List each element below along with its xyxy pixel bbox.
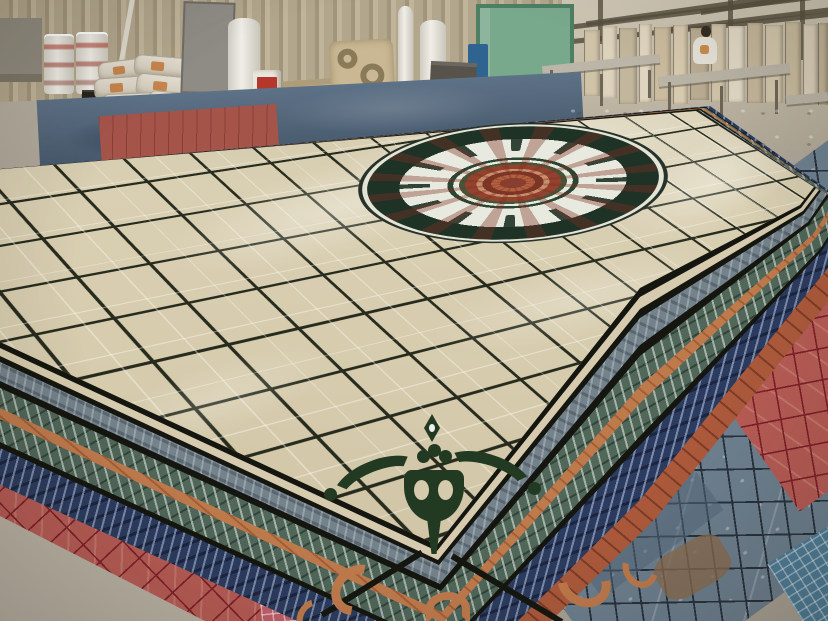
table-leg (648, 70, 651, 98)
leaning-slab (728, 26, 745, 102)
crown-dot (439, 450, 452, 463)
worker-head (701, 26, 711, 37)
leaning-slab (747, 23, 763, 103)
horn-tip (528, 482, 541, 495)
factory-floor-photo (0, 0, 828, 621)
leaning-slab (673, 25, 688, 104)
volute-center-knot (426, 592, 470, 621)
shield-cutout (414, 480, 429, 500)
tassel-dot (429, 424, 435, 432)
worker (693, 37, 717, 64)
leaning-slab (803, 24, 818, 104)
bucket-stack (44, 34, 74, 94)
shield-cutout (438, 480, 453, 500)
horn-tip (324, 488, 337, 501)
template-ring (337, 48, 358, 69)
gray-shelf (0, 18, 42, 82)
